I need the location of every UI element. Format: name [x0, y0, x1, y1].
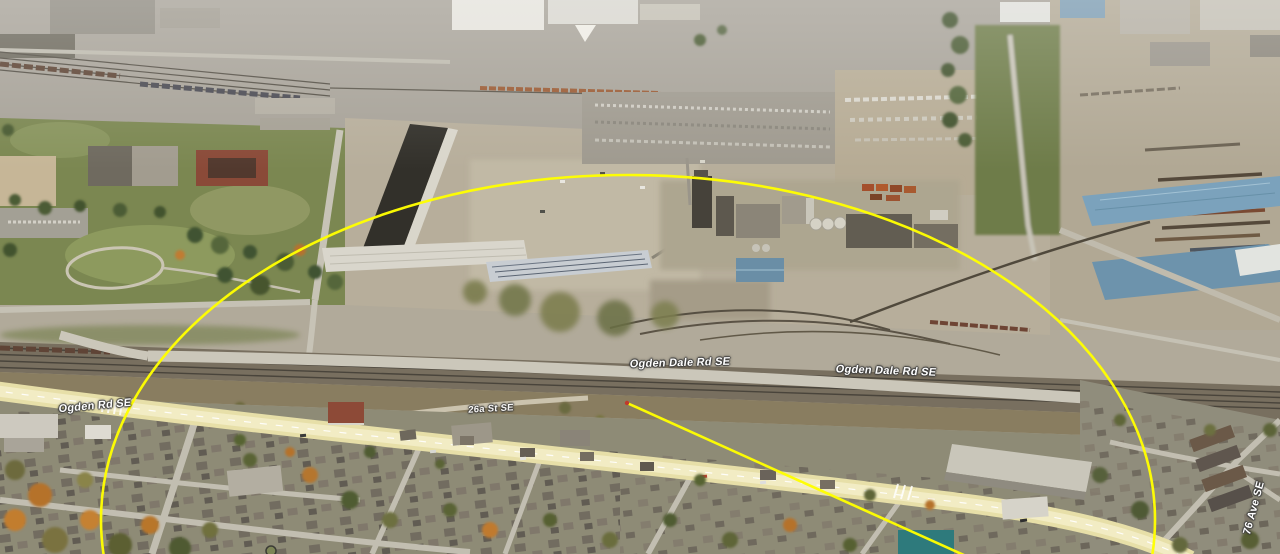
highlight-line-annotation[interactable] — [627, 403, 966, 554]
highlight-ellipse-annotation[interactable] — [101, 175, 1155, 554]
annotation-overlay — [0, 0, 1280, 554]
line-start-marker — [625, 401, 629, 405]
aerial-map-view[interactable]: Ogden Dale Rd SE Ogden Dale Rd SE Ogden … — [0, 0, 1280, 554]
